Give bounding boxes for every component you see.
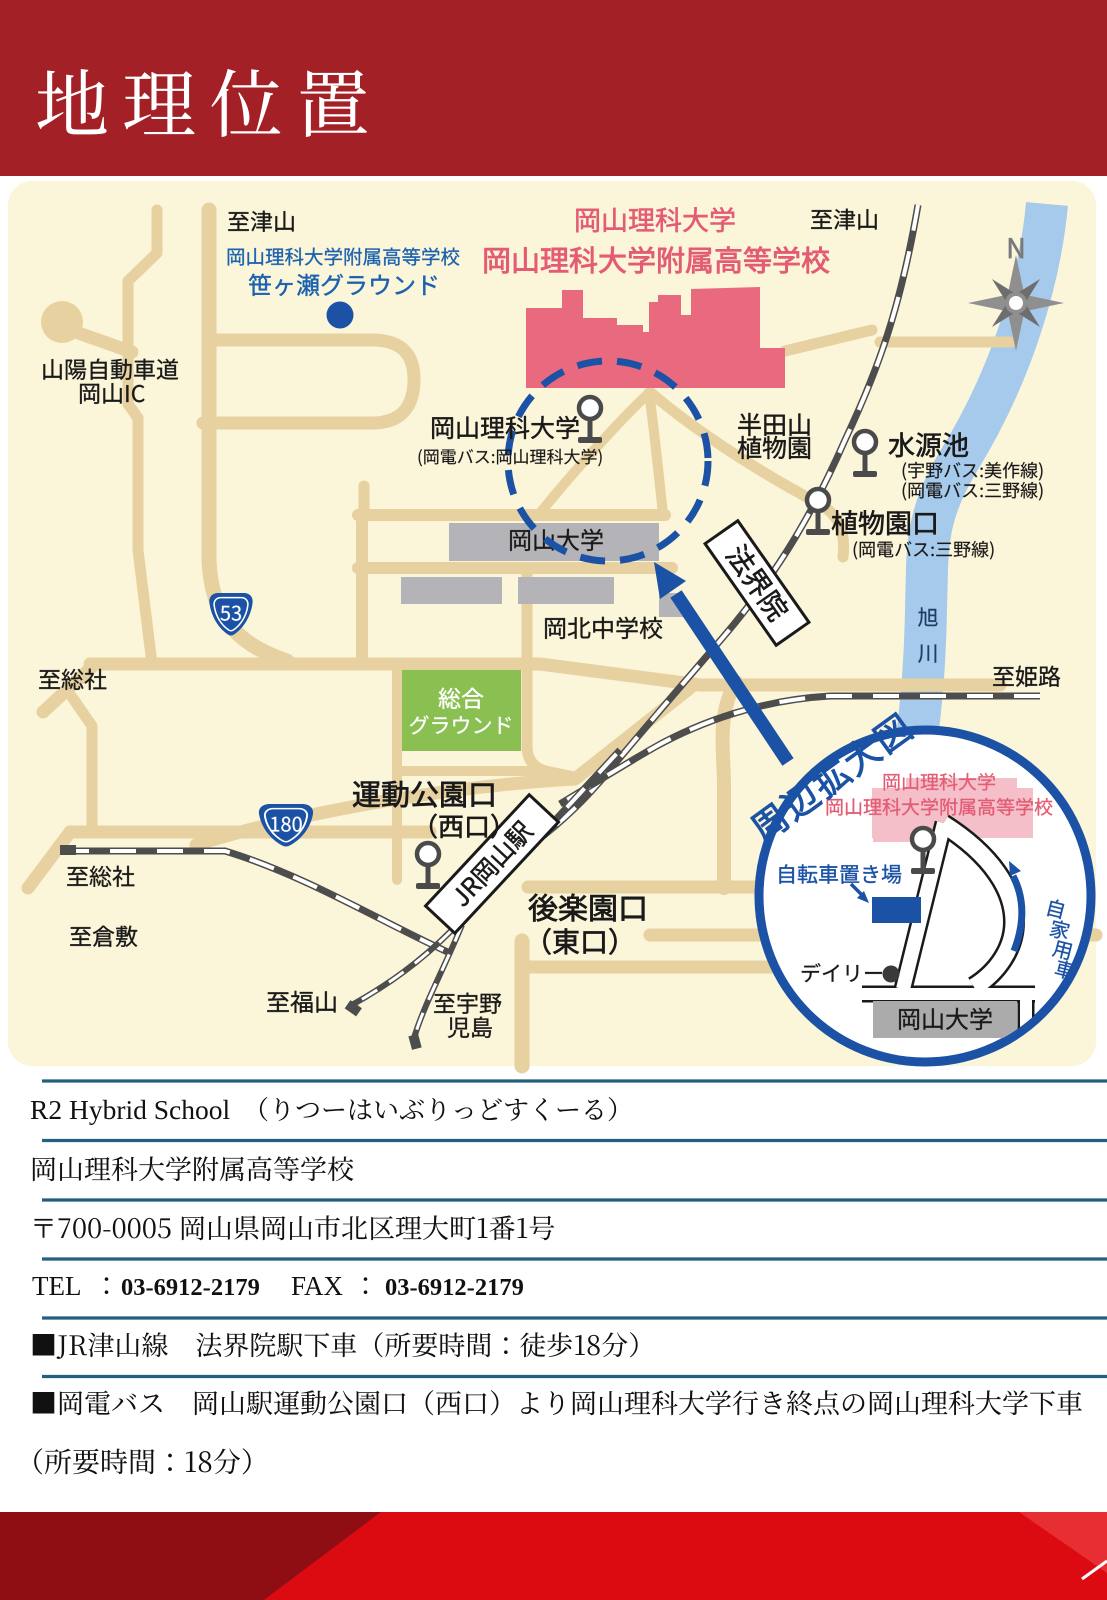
svg-text:R2 Hybrid School: R2 Hybrid School — [30, 1094, 231, 1125]
svg-text:TEL: TEL — [32, 1271, 81, 1301]
svg-text:FAX: FAX — [291, 1271, 344, 1301]
svg-text:03-6912-2179: 03-6912-2179 — [121, 1274, 260, 1301]
svg-text:03-6912-2179: 03-6912-2179 — [385, 1274, 524, 1301]
